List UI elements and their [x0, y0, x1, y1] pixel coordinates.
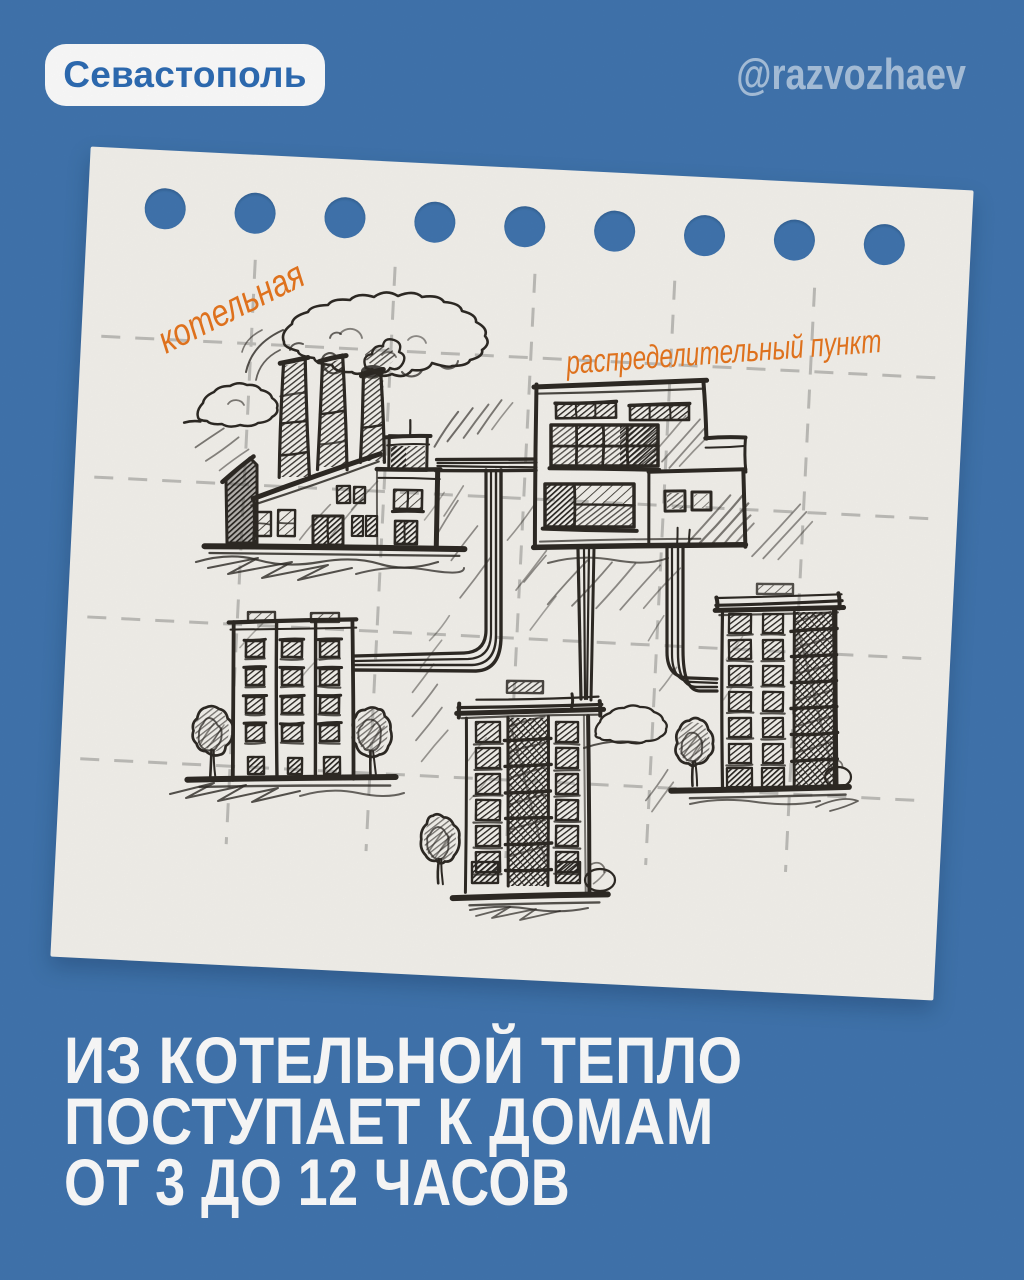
svg-text:распределительный пункт: распределительный пункт — [564, 322, 883, 381]
